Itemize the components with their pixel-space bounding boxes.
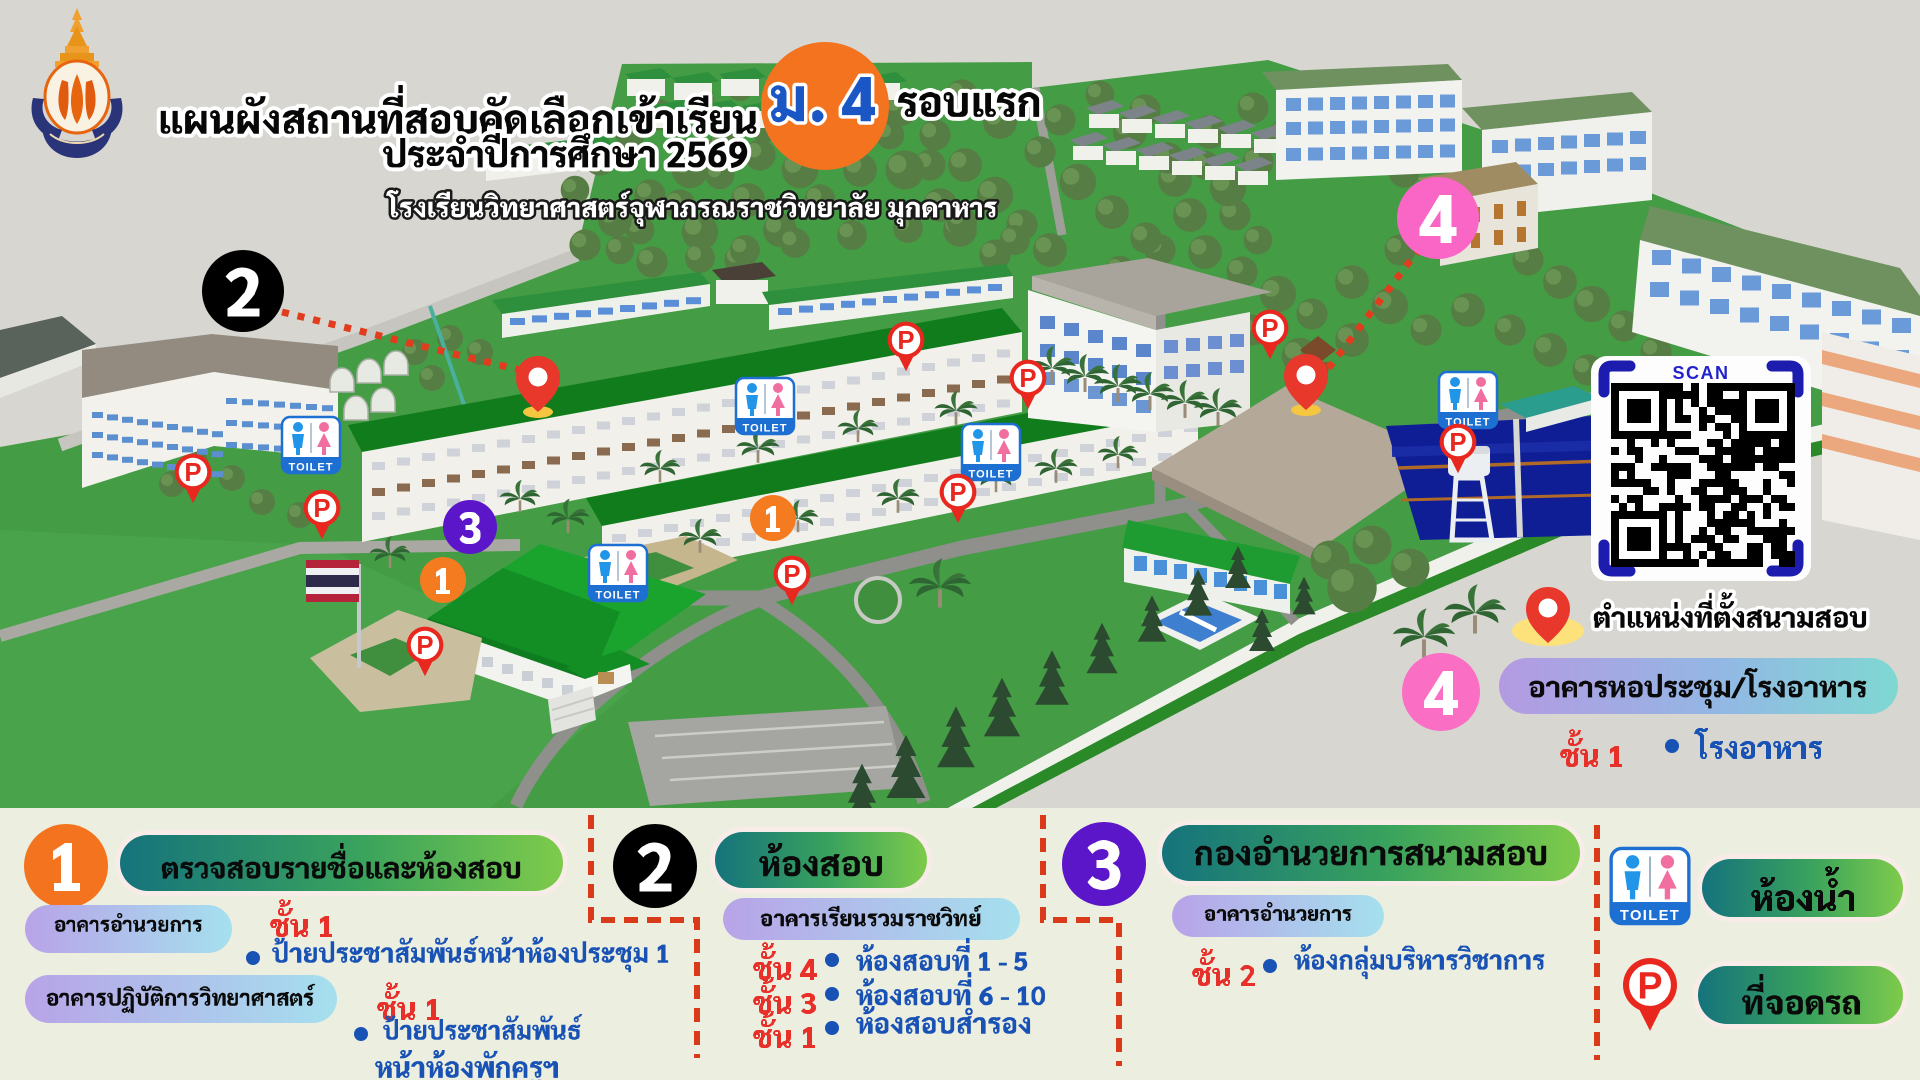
svg-text:SCAN: SCAN xyxy=(1672,363,1729,383)
